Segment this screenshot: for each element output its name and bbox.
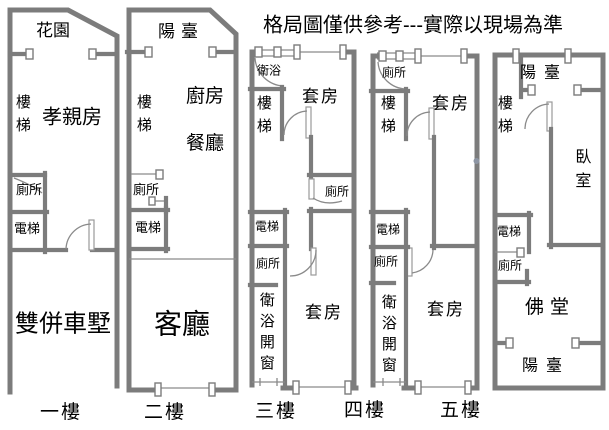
- window-marker: [274, 47, 281, 57]
- room-label-suite-top-f4: 套房: [432, 95, 470, 113]
- f4-mid-walls: [432, 137, 477, 248]
- room-label-toilet-mid-f3: 廁所: [325, 186, 349, 199]
- f3-bath-window: [252, 378, 285, 386]
- room-label-balcony-top-f5: 陽臺: [520, 66, 568, 83]
- door-marker: [156, 170, 163, 179]
- door-post-marker: [89, 49, 96, 59]
- f5-door-arc: [525, 104, 549, 129]
- floorplan-walls: [0, 0, 609, 430]
- room-label-suite-bottom-f3: 套房: [305, 304, 343, 322]
- room-label-garage: 雙併車墅: [15, 311, 111, 336]
- room-label-stairs-f2: 樓梯: [135, 94, 151, 140]
- room-label-bath-window-f3: 衛浴開窗: [258, 292, 274, 376]
- door-marker: [517, 248, 524, 257]
- room-label-toilet-f1: 廁所: [16, 183, 42, 197]
- floor-label-3: 三樓: [255, 402, 297, 422]
- room-label-garden: 花園: [36, 22, 70, 40]
- floor-label-2: 二樓: [144, 403, 186, 423]
- window-marker: [415, 381, 421, 394]
- room-label-suite-top-f3: 套房: [302, 88, 340, 106]
- room-label-toilet-f3: 廁所: [256, 258, 280, 271]
- door-marker: [149, 197, 155, 205]
- window-marker: [396, 51, 403, 61]
- f4-suite-door-arc: [412, 250, 433, 273]
- window-marker: [255, 47, 262, 57]
- room-label-living: 客廳: [154, 309, 210, 338]
- floorplan-diagram: 格局圖僅供參考---實際以現場為準 花園 樓梯 孝親房 廁所 電梯 雙併車墅 一…: [0, 0, 609, 430]
- room-label-bedroom: 臥室: [572, 148, 589, 196]
- room-label-balcony-f2: 陽臺: [158, 23, 204, 41]
- f3-toilet-door-arc: [313, 198, 342, 203]
- room-label-toilet-f5: 廁所: [498, 260, 522, 273]
- room-label-buddha-hall: 佛堂: [525, 298, 575, 318]
- f5-toilet-walls: [495, 271, 529, 284]
- room-label-elevator-f2: 電梯: [135, 221, 161, 235]
- door-post-marker: [209, 47, 216, 57]
- room-label-balcony-bottom-f5: 陽臺: [522, 359, 570, 376]
- room-label-elevator-f1: 電梯: [14, 222, 40, 236]
- window-marker: [461, 49, 467, 63]
- window-marker: [293, 381, 299, 394]
- door-post-marker: [528, 85, 535, 95]
- window-marker: [513, 49, 519, 63]
- window-marker: [209, 383, 215, 396]
- room-label-stairs-f3: 樓梯: [255, 95, 271, 141]
- floor-label-1: 一樓: [40, 403, 82, 423]
- floor-label-4: 四樓: [344, 401, 386, 421]
- f3-door-arc: [284, 111, 307, 135]
- f1-door-arc: [66, 224, 91, 249]
- window-marker: [345, 381, 351, 394]
- room-label-toilet-top-f4: 廁所: [382, 67, 406, 80]
- window-marker: [565, 49, 571, 63]
- room-label-toilet-f4: 廁所: [374, 256, 398, 269]
- window-marker: [340, 45, 346, 59]
- room-label-bath-f3: 衛浴: [257, 65, 281, 78]
- room-label-parents-room: 孝親房: [42, 108, 102, 129]
- window-marker: [294, 45, 300, 59]
- door-post-marker: [572, 338, 579, 348]
- room-label-elevator-f4: 電梯: [376, 224, 400, 237]
- f5-door-leaf: [547, 102, 552, 131]
- f4-door-arc: [407, 112, 430, 136]
- room-label-elevator-f3: 電梯: [255, 221, 279, 234]
- door-post-marker: [574, 85, 581, 95]
- window-marker: [379, 51, 386, 61]
- room-label-dining: 餐廳: [186, 134, 224, 154]
- window-marker: [465, 381, 471, 394]
- room-label-stairs-f5: 樓梯: [496, 95, 512, 141]
- f4-bath-window: [373, 378, 406, 386]
- door-post-marker: [506, 338, 513, 348]
- room-label-bath-window-f4: 衛浴開窗: [380, 294, 396, 378]
- wall-dot-marker: [474, 158, 480, 164]
- door-post-marker: [26, 49, 33, 59]
- room-label-kitchen: 廚房: [186, 87, 224, 107]
- window-marker: [155, 383, 161, 396]
- disclaimer-title: 格局圖僅供參考---實際以現場為準: [263, 9, 563, 38]
- room-label-stairs-f4: 樓梯: [379, 95, 395, 141]
- room-label-suite-bottom-f4: 套房: [427, 301, 465, 319]
- room-label-toilet-f2: 廁所: [133, 183, 159, 197]
- floor-label-5: 五樓: [440, 401, 482, 421]
- room-label-elevator-f5: 電梯: [497, 226, 521, 239]
- door-post-marker: [145, 47, 152, 57]
- room-label-stairs-f1: 樓梯: [14, 94, 30, 140]
- f3-toilet-door-leaf: [309, 179, 314, 199]
- window-marker: [415, 49, 421, 63]
